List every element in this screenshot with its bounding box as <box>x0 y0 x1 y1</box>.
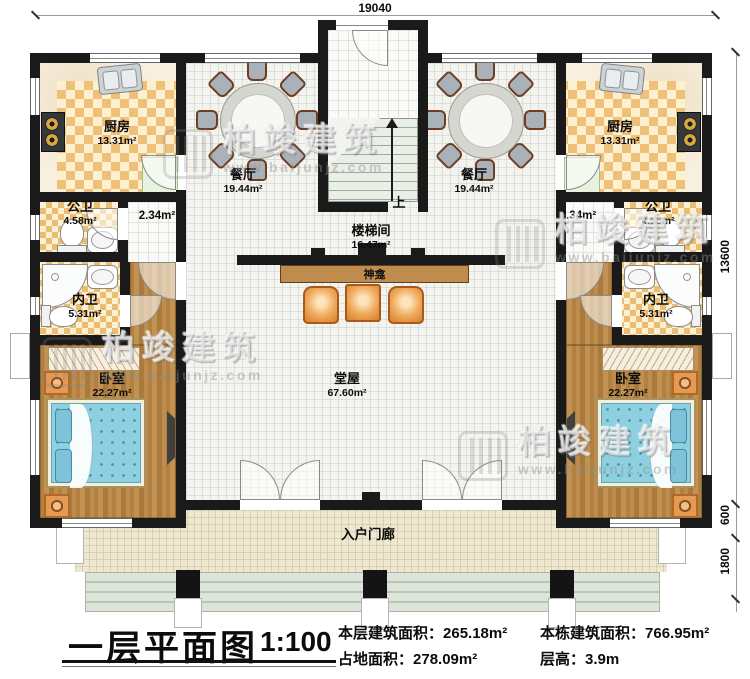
room-label-dining-right: 餐厅19.44m² <box>454 168 493 195</box>
east-wall-seg <box>556 300 566 518</box>
bath-divider-wall <box>30 252 128 262</box>
kitchen-top-window <box>582 53 652 63</box>
room-label-kitchen-right: 厨房13.31m² <box>600 120 639 147</box>
pillow <box>670 449 687 483</box>
top-dimension-line <box>35 15 716 16</box>
stove-burner <box>45 117 59 131</box>
dining-chair <box>196 110 218 130</box>
stove-icon <box>677 112 701 152</box>
tv <box>567 411 575 465</box>
stairs-up-arrow <box>391 127 393 201</box>
public-bath-window <box>30 215 40 240</box>
bedroom-bottom-window <box>610 518 680 528</box>
room-label-public-bath-left: 公卫4.58m² <box>63 200 96 227</box>
east-wall-seg <box>176 53 186 155</box>
stove-burner <box>45 133 59 147</box>
bedroom-bottom-window <box>62 518 132 528</box>
room-label-stairwell: 楼梯间16.47m² <box>351 224 390 251</box>
sink-basin <box>120 68 138 89</box>
sink-basin <box>102 70 120 91</box>
side-table <box>345 284 381 322</box>
room-label-dining-left: 餐厅19.44m² <box>223 168 262 195</box>
nightstand <box>672 371 698 395</box>
top-dimension-label: 19040 <box>330 1 420 15</box>
porch-column <box>363 570 387 598</box>
stove-burner <box>683 133 697 147</box>
stairwell-wall-right <box>418 20 428 212</box>
bedroom-window <box>30 400 40 475</box>
exterior-sill <box>10 333 30 379</box>
shrine-shelf: 神龛 <box>280 265 469 283</box>
kitchen-top-window <box>90 53 160 63</box>
bed <box>596 398 696 488</box>
right-dimension-label-porch: 600 <box>718 505 732 525</box>
stairwell-door-opening <box>336 20 388 30</box>
bath-wall-stub <box>612 327 622 335</box>
bath-wall-stub <box>118 202 128 208</box>
wall-tab <box>311 248 325 255</box>
mattress <box>601 403 691 483</box>
nightstand <box>44 371 70 395</box>
title-underline-thin <box>62 666 336 667</box>
room-label-bedroom-right: 卧室22.27m² <box>608 372 647 399</box>
bedroom-north-wall <box>612 335 712 345</box>
bathroom-sink-icon <box>87 265 118 289</box>
hall-south-wall <box>186 500 240 510</box>
private-bath-window <box>30 297 40 315</box>
stove-icon <box>41 112 65 152</box>
stat-floor-height: 层高：3.9m <box>540 648 619 669</box>
stairwell-wall-bottom <box>318 202 388 212</box>
public-bath-window <box>702 215 712 240</box>
plan-scale: 1:100 <box>260 626 332 658</box>
right-dimension-label-house: 13600 <box>718 240 732 273</box>
room-label-private-bath-right: 内卫5.31m² <box>639 293 672 320</box>
sink-basin <box>622 70 640 91</box>
kitchen-sink-icon <box>599 63 646 95</box>
bath-divider-wall <box>614 252 712 262</box>
room-label-porch: 入户门廊 <box>341 527 395 543</box>
private-bath-window <box>702 297 712 315</box>
title-underline <box>62 660 336 663</box>
room-label-hall: 堂屋67.60m² <box>327 372 366 399</box>
wall-tab <box>411 248 425 255</box>
kitchen-window <box>30 78 40 115</box>
bathroom-sink-icon <box>624 265 655 289</box>
hall-north-wall <box>237 255 505 265</box>
area-label-corridor-left: 2.34m² <box>139 210 175 223</box>
dining-table-top <box>231 94 285 148</box>
nightstand <box>672 494 698 518</box>
nightstand <box>44 494 70 518</box>
tv <box>167 411 175 465</box>
dining-table-top <box>459 94 513 148</box>
kitchen-south-wall <box>556 192 712 202</box>
porch-column <box>176 570 200 598</box>
wall-tab <box>362 492 380 500</box>
dining-window-left <box>205 53 300 63</box>
bed <box>46 398 146 488</box>
right-dimension-line <box>736 53 737 612</box>
stove-burner <box>683 117 697 131</box>
room-label-kitchen-left: 厨房13.31m² <box>97 120 136 147</box>
stat-building-area: 本栋建筑面积：766.95m² <box>540 622 709 643</box>
mattress <box>51 403 141 483</box>
east-wall-seg <box>176 300 186 518</box>
dining-window-right <box>442 53 537 63</box>
armchair <box>388 286 424 324</box>
bedroom-north-wall <box>30 335 130 345</box>
blanket <box>70 404 93 488</box>
pillow <box>670 409 687 443</box>
stairwell-wall-left <box>318 20 328 212</box>
dining-chair <box>524 110 546 130</box>
stat-footprint-area: 占地面积：278.09m² <box>338 648 477 669</box>
wardrobe <box>602 347 694 371</box>
bedroom-window <box>702 400 712 475</box>
floor-plan-canvas: 19040 13600 600 1800 神龛 <box>0 0 750 679</box>
hall-south-wall <box>320 500 422 510</box>
dining-chair <box>296 110 318 130</box>
stat-floor-area: 本层建筑面积：265.18m² <box>338 622 507 643</box>
shrine-label: 神龛 <box>364 266 386 282</box>
right-dimension-label-steps: 1800 <box>718 548 732 575</box>
stairs-up-label: 上 <box>392 196 405 211</box>
wardrobe <box>48 347 140 371</box>
bath-wall-seg <box>120 262 130 295</box>
hall-south-wall <box>502 500 556 510</box>
pillow <box>55 409 72 443</box>
east-wall-seg <box>556 53 566 155</box>
room-label-bedroom-left: 卧室22.27m² <box>92 372 131 399</box>
blanket <box>649 404 672 488</box>
room-label-public-bath-right: 公卫4.58m² <box>641 200 674 227</box>
kitchen-sink-icon <box>97 63 144 95</box>
stairs-up-arrowhead <box>386 118 398 128</box>
room-label-private-bath-left: 内卫5.31m² <box>68 293 101 320</box>
exterior-sill <box>712 333 732 379</box>
armchair <box>303 286 339 324</box>
bath-wall-stub <box>614 202 624 208</box>
plan-title: 一层平面图 <box>68 620 258 671</box>
bath-wall-seg <box>612 262 622 295</box>
sink-basin <box>604 68 622 89</box>
bath-wall-stub <box>120 327 130 335</box>
area-label-corridor-right: 2.34m² <box>560 210 596 223</box>
porch-column <box>550 570 574 598</box>
kitchen-window <box>702 78 712 115</box>
pillow <box>55 449 72 483</box>
kitchen-south-wall <box>30 192 186 202</box>
